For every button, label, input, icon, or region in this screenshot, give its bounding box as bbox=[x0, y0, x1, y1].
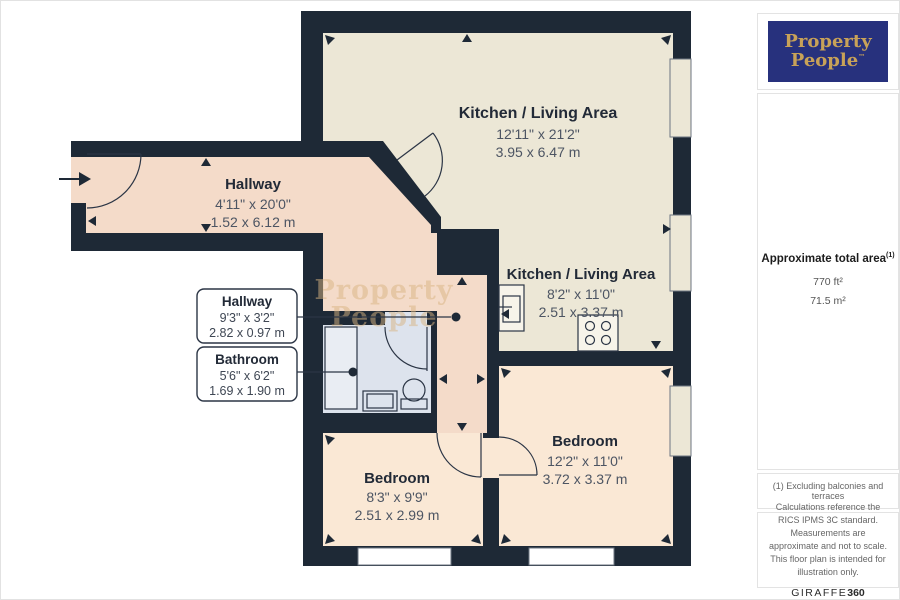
window-kitchen-top bbox=[670, 59, 691, 137]
giraffe360-name: GIRAFFE bbox=[791, 587, 847, 599]
area-footnote-marker: (1) bbox=[886, 252, 895, 259]
room-name: Kitchen / Living Area bbox=[507, 266, 656, 283]
callout-name: Bathroom bbox=[215, 352, 279, 367]
callout-dims-imperial: 5'6" x 6'2" bbox=[220, 369, 275, 383]
room-name: Hallway bbox=[225, 176, 282, 193]
callout-dims-metric: 1.69 x 1.90 m bbox=[209, 384, 285, 398]
room-label-bedroom-2: Bedroom 12'2" x 11'0" 3.72 x 3.37 m bbox=[543, 433, 628, 487]
giraffe360-logo: GIRAFFE360 bbox=[791, 587, 865, 599]
room-dims-imperial: 12'11" x 21'2" bbox=[496, 126, 580, 142]
total-area-box: Approximate total area(1) 770 ft² 71.5 m… bbox=[757, 93, 899, 470]
total-area-imperial: 770 ft² bbox=[813, 273, 843, 292]
window-bedroom2-bottom bbox=[529, 548, 614, 565]
bedroom-2-doorway bbox=[483, 438, 499, 478]
total-area-metric: 71.5 m² bbox=[810, 292, 846, 311]
room-dims-metric: 3.72 x 3.37 m bbox=[543, 471, 628, 487]
callout-dims-imperial: 9'3" x 3'2" bbox=[220, 311, 275, 325]
room-dims-imperial: 8'3" x 9'9" bbox=[366, 489, 427, 505]
callout-dims-metric: 2.82 x 0.97 m bbox=[209, 326, 285, 340]
stove-hob bbox=[578, 315, 618, 351]
room-dims-imperial: 8'2" x 11'0" bbox=[547, 286, 615, 302]
room-name: Bedroom bbox=[364, 470, 430, 487]
room-dims-metric: 2.51 x 2.99 m bbox=[355, 507, 440, 523]
room-dims-metric: 3.95 x 6.47 m bbox=[496, 144, 581, 160]
logo-box: Property People™ bbox=[757, 13, 899, 90]
floorplan-page: Property People Kitchen / Living Area 12… bbox=[0, 0, 900, 600]
room-dims-metric: 1.52 x 6.12 m bbox=[211, 214, 296, 230]
room-name: Kitchen / Living Area bbox=[459, 105, 618, 122]
room-dims-metric: 2.51 x 3.37 m bbox=[539, 304, 624, 320]
window-bedroom1-bottom bbox=[358, 548, 451, 565]
trademark-symbol: ™ bbox=[858, 52, 865, 61]
watermark: Property People bbox=[315, 275, 454, 333]
footnote-text: (1) Excluding balconies and terraces bbox=[766, 481, 890, 501]
kitchen-counter-sink bbox=[499, 285, 524, 331]
window-kitchen-mid bbox=[670, 215, 691, 291]
property-people-logo: Property People™ bbox=[768, 21, 888, 82]
logo-line1: Property bbox=[772, 32, 884, 51]
disclaimer-text: Calculations reference the RICS IPMS 3C … bbox=[766, 501, 890, 579]
room-label-bedroom-1: Bedroom 8'3" x 9'9" 2.51 x 2.99 m bbox=[355, 470, 440, 523]
room-dims-imperial: 4'11" x 20'0" bbox=[215, 196, 291, 212]
floorplan-svg: Property People Kitchen / Living Area 12… bbox=[1, 1, 757, 600]
logo-line2: People™ bbox=[772, 51, 884, 70]
room-dims-imperial: 12'2" x 11'0" bbox=[547, 453, 623, 469]
giraffe360-suffix: 360 bbox=[847, 587, 865, 599]
room-name: Bedroom bbox=[552, 433, 618, 450]
window-bedroom2-right bbox=[670, 386, 691, 456]
total-area-title: Approximate total area(1) bbox=[761, 252, 894, 265]
callout-name: Hallway bbox=[222, 294, 273, 309]
sidebar: Property People™ Approximate total area(… bbox=[757, 13, 899, 591]
disclaimer-box: Calculations reference the RICS IPMS 3C … bbox=[757, 512, 899, 588]
